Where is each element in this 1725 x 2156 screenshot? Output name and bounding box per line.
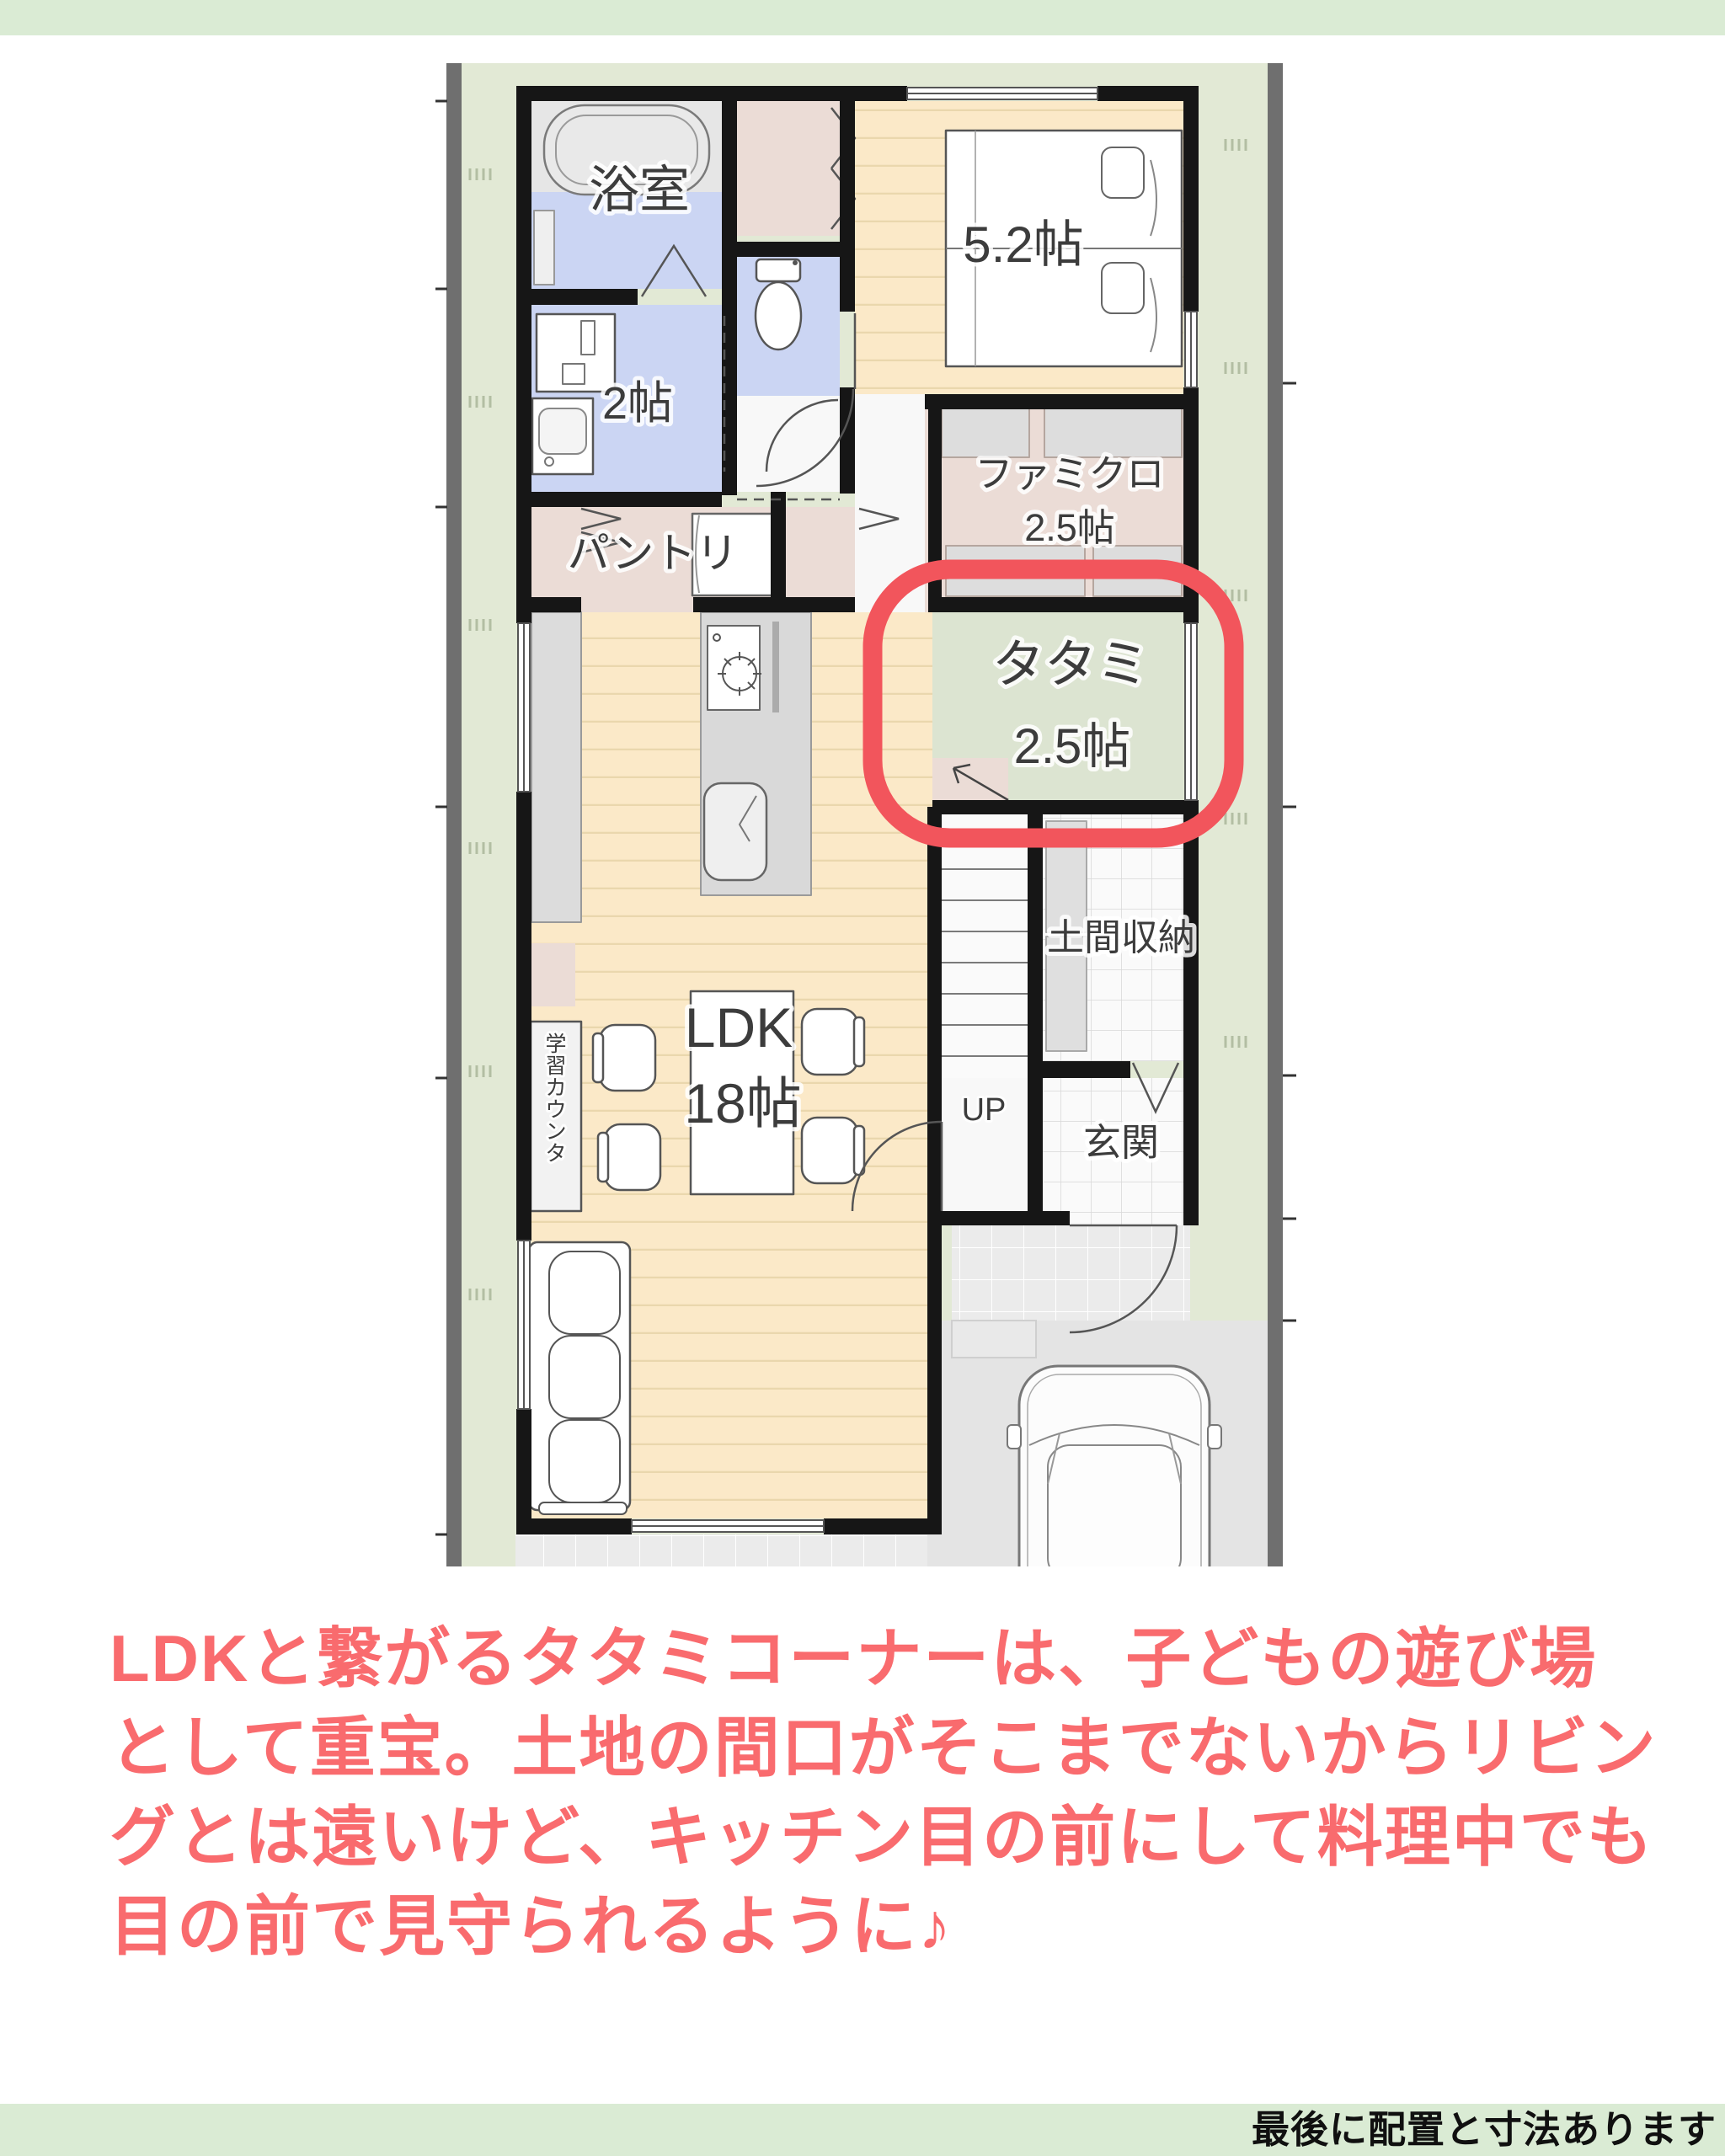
top-banner	[0, 0, 1725, 35]
terrace-strip	[515, 1534, 927, 1566]
kitchen-sink	[704, 783, 766, 880]
label-doma: 土間収納	[1047, 917, 1195, 958]
hall-north	[722, 396, 855, 492]
label-genkan: 玄関	[1083, 1121, 1159, 1164]
caption-line-2: として重宝。土地の間口がそこまでないからリビン	[109, 1703, 1651, 1792]
label-bedroom: 5.2帖	[963, 216, 1083, 273]
label-tatami: タタミ	[992, 636, 1149, 694]
site-boundary-right	[1268, 63, 1283, 1566]
wall-nook	[531, 943, 575, 1006]
chair	[802, 1118, 857, 1183]
pillow-2	[1102, 263, 1144, 313]
stove	[708, 626, 760, 710]
toilet-bowl	[756, 282, 801, 350]
chair-back	[854, 1017, 864, 1066]
vanity-bowl	[539, 408, 586, 454]
chair	[600, 1025, 655, 1091]
label-up: UP	[962, 1092, 1007, 1128]
caption-line-3: グとは遠いけど、キッチン目の前にして料理中でも	[109, 1792, 1651, 1881]
label-ldk-size: 18帖	[684, 1072, 801, 1134]
chair-back	[598, 1133, 608, 1182]
entrance-porch	[952, 1225, 1190, 1321]
kitchen-back-counter	[531, 612, 581, 922]
bath-counter	[534, 211, 554, 285]
chair	[605, 1124, 660, 1190]
porch-step	[952, 1321, 1036, 1358]
sofa	[529, 1242, 630, 1514]
toilet-button	[793, 260, 798, 265]
bottom-banner: 最後に配置と寸法あります	[0, 2104, 1725, 2156]
caption-text: LDKと繋がるタタミコーナーは、子どもの遊び場 として重宝。土地の間口がそこまで…	[109, 1614, 1651, 1971]
label-tatami-size: 2.5帖	[1014, 719, 1131, 774]
site-boundary-left	[446, 63, 462, 1566]
bedroom-closet	[737, 101, 855, 236]
page: 浴室 2帖 パントリ 5.2帖 ファミクロ 2.5帖 タタミ 2.5帖 土間収納…	[0, 0, 1725, 2156]
label-pantry: パントリ	[568, 530, 739, 577]
car	[1007, 1366, 1221, 1566]
label-washroom: 2帖	[602, 378, 673, 429]
floor-plan: 浴室 2帖 パントリ 5.2帖 ファミクロ 2.5帖 タタミ 2.5帖 土間収納…	[434, 63, 1301, 1566]
label-study-counter: 学習カウンタ	[545, 1033, 566, 1166]
chair-back	[593, 1033, 603, 1082]
label-famiclo: ファミクロ	[975, 452, 1164, 495]
hall-closet	[786, 507, 855, 612]
caption-line-1: LDKと繋がるタタミコーナーは、子どもの遊び場	[109, 1614, 1651, 1703]
pillow-1	[1102, 147, 1144, 198]
bottom-note: 最後に配置と寸法あります	[1252, 2104, 1725, 2156]
label-famiclo-size: 2.5帖	[1024, 506, 1115, 549]
caption-line-4: 目の前で見守られるように♪	[109, 1881, 1651, 1971]
label-ldk: LDK	[685, 996, 793, 1059]
counter-screen	[772, 622, 779, 712]
chair	[802, 1009, 857, 1075]
label-bath: 浴室	[589, 162, 690, 218]
